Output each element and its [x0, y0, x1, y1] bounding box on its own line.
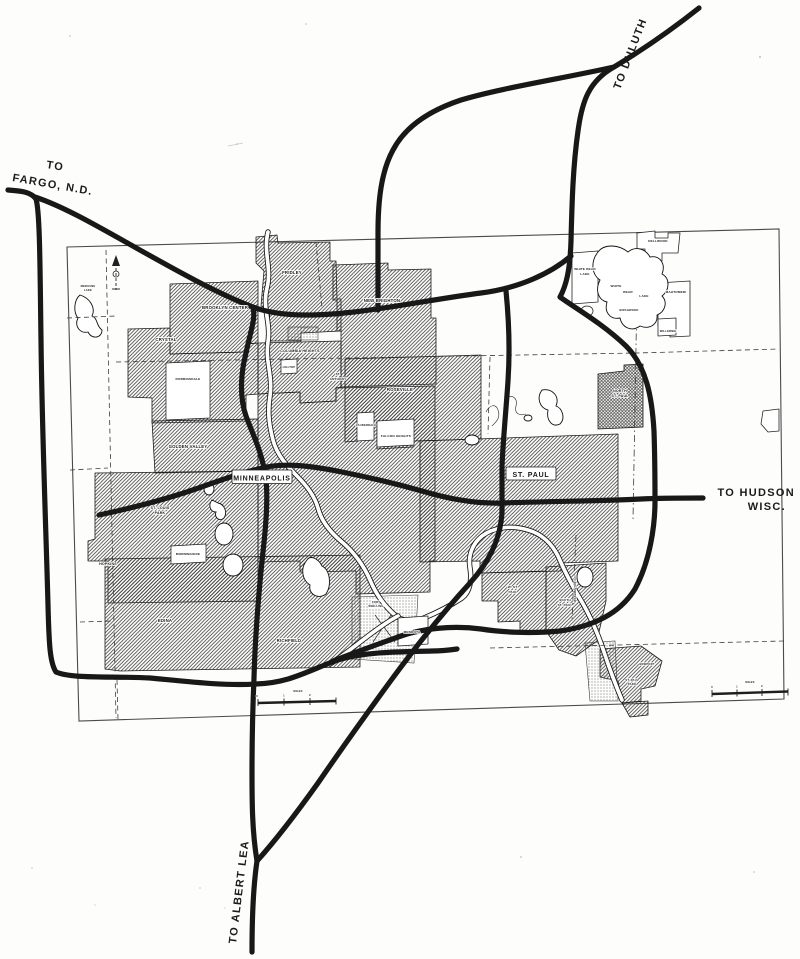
- label-dellwood: DELLWOOD: [648, 239, 668, 243]
- north-arrow-icon: [112, 255, 120, 290]
- township-line: [70, 468, 108, 470]
- scale-two: 2: [761, 684, 763, 688]
- scale-miles-label: MILES: [293, 689, 302, 693]
- label-newport: NEWPORT: [639, 662, 654, 666]
- lake-white-bear: [593, 246, 668, 329]
- enclave-falcon-heights: [377, 419, 414, 447]
- label-to-duluth: TO DULUTH: [612, 17, 650, 91]
- label-west-st-paul-2: PAUL: [509, 590, 518, 594]
- scale-bar-east: 0 1 2 MILES: [711, 680, 788, 697]
- label-willernie: WILLERNIE: [660, 329, 677, 333]
- label-roseville: ROSEVILLE: [387, 387, 413, 392]
- label-to-fargo-line1: TO: [46, 159, 65, 174]
- stipple-patch: [288, 327, 318, 340]
- scale-zero: 0: [256, 694, 258, 698]
- label-south-st-paul-2: ST. PAUL: [557, 603, 572, 607]
- scale-miles-label: MILES: [745, 680, 754, 684]
- label-south-st-paul-1: SOUTH: [559, 598, 571, 602]
- label-mendota: MENDOTA: [404, 630, 421, 634]
- enclave-robbinsdale: [166, 361, 210, 420]
- label-washington-county: WASHINGTON CO.: [573, 575, 577, 602]
- label-crystal: CRYSTAL: [155, 337, 176, 342]
- label-medicine-lake-2: LAKE: [84, 288, 92, 292]
- label-fort-snelling-1: FORT: [372, 600, 380, 604]
- label-morningside: MORNINGSIDE: [176, 552, 200, 556]
- label-new-brighton: NEW BRIGHTON: [364, 298, 400, 303]
- label-st-paul: ST. PAUL: [513, 472, 550, 479]
- label-mahtomedi: MAHTOMEDI: [666, 290, 687, 294]
- label-medicine-lake-1: MEDICINE: [81, 284, 96, 288]
- lake-medicine: [75, 295, 102, 337]
- lake-pickerel: [577, 567, 593, 587]
- label-white-bear-city-2: LAKE: [580, 272, 589, 276]
- label-lauderdale: LAUDERDALE: [356, 423, 377, 427]
- label-hopkins: HOPKINS: [99, 562, 117, 566]
- municipality-area-west-st-paul: [482, 571, 546, 633]
- label-edina: EDINA: [158, 618, 172, 623]
- highway-to-albert-lea: [252, 861, 257, 952]
- label-minneapolis: MINNEAPOLIS: [233, 476, 290, 483]
- label-north-st-paul-2: ST. PAUL: [611, 394, 629, 398]
- label-lake-white-bear-1: WHITE: [611, 284, 622, 288]
- lake-harriet: [223, 554, 243, 576]
- label-st-anthony-2: ANTHONY: [330, 377, 347, 381]
- scanned-highway-map: 0 1 2 MILES 0 1 2 MILES MINNEAPOLIS ST. …: [0, 0, 800, 959]
- scale-bar-south: 0 1 2 MILES: [256, 689, 336, 706]
- lake-gervais: [524, 415, 532, 421]
- label-richfield: RICHFIELD: [277, 638, 302, 643]
- label-falcon-heights: FALCON HEIGHTS: [381, 434, 411, 438]
- boundary-willernie: [658, 318, 676, 336]
- label-st-paul-park-1: ST. PAUL: [625, 678, 639, 682]
- label-hilltop: HILLTOP: [283, 365, 296, 369]
- lake-como: [465, 435, 479, 445]
- label-golden-valley: GOLDEN VALLEY: [169, 444, 208, 449]
- creek-line: [486, 406, 499, 426]
- township-line: [488, 357, 490, 434]
- label-lake-white-bear-3: LAKE: [639, 294, 648, 298]
- label-fridley: FRIDLEY: [282, 270, 302, 275]
- label-west-st-paul-1: W. ST.: [508, 585, 518, 589]
- label-white-bear-city-1: WHITE BEAR: [574, 267, 596, 271]
- township-line: [117, 680, 118, 719]
- label-birchwood: BIRCHWOOD: [620, 308, 639, 312]
- scale-one: 1: [283, 694, 285, 698]
- label-robbinsdale: ROBBINSDALE: [176, 377, 201, 381]
- boundary-small-area-east: [761, 409, 779, 432]
- municipality-area-st-paul-park-south: [622, 701, 648, 717]
- label-brooklyn-center: BROOKLYN CENTER: [202, 305, 249, 310]
- map-svg: 0 1 2 MILES 0 1 2 MILES MINNEAPOLIS ST. …: [0, 0, 800, 959]
- label-st-louis-park-1: ST. LOUIS: [151, 506, 170, 510]
- label-to-hudson-line1: TO HUDSON: [717, 487, 795, 499]
- label-to-albert-lea: TO ALBERT LEA: [227, 839, 252, 944]
- scale-one: 1: [736, 685, 738, 689]
- label-columbia-heights: COLUMBIA HEIGHTS: [280, 349, 320, 353]
- scale-two: 2: [309, 693, 311, 697]
- label-st-paul-park-2: PARK: [628, 682, 636, 686]
- lake-phalen: [539, 390, 563, 425]
- lake-calhoun: [215, 523, 233, 545]
- label-north-st-paul-1: NORTH: [613, 389, 627, 393]
- label-lake-white-bear-2: BEAR: [623, 290, 633, 294]
- label-fort-snelling-2: SNELLING: [368, 604, 383, 608]
- label-st-anthony-1: ST.: [335, 372, 340, 376]
- label-to-hudson-line2: WISC.: [748, 501, 786, 513]
- label-st-louis-park-2: PARK: [155, 511, 166, 515]
- scale-zero: 0: [711, 685, 713, 689]
